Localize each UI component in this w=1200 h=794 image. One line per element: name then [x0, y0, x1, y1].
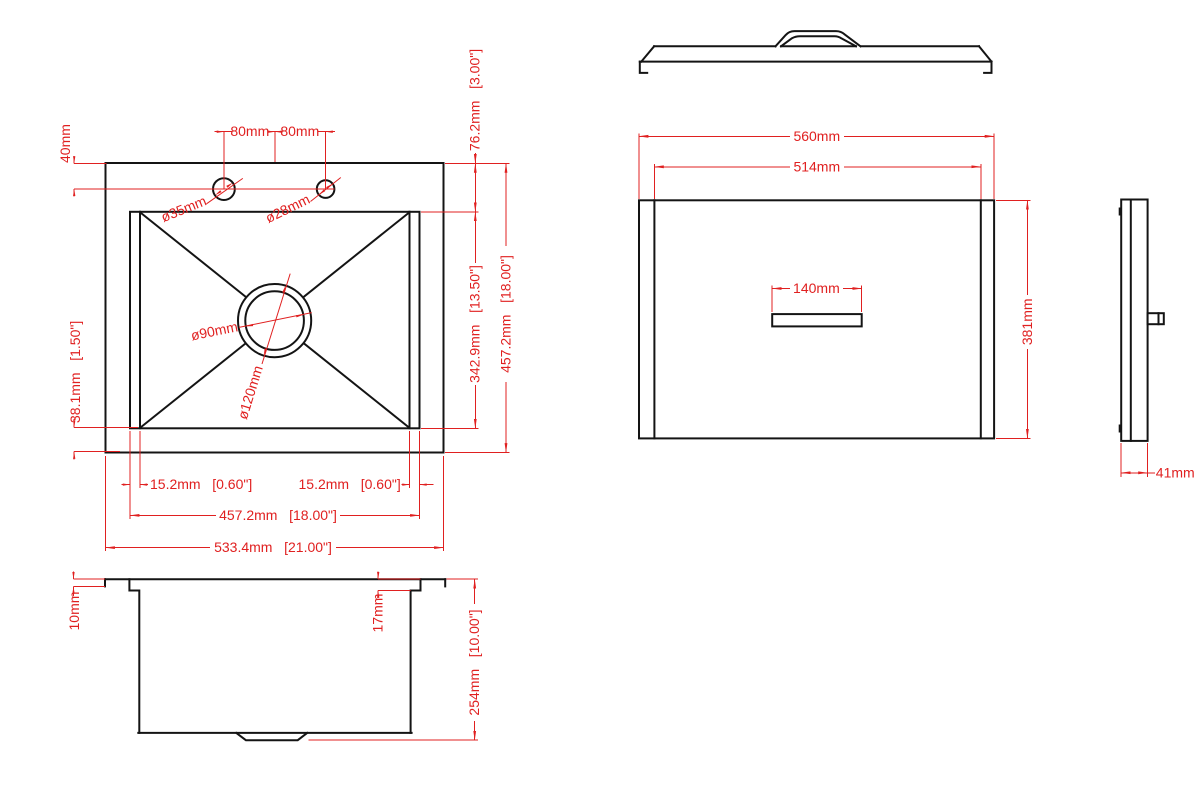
svg-text:457.2mm [18.00"]: 457.2mm [18.00"]	[219, 507, 337, 523]
svg-text:38.1mm [1.50"]: 38.1mm [1.50"]	[67, 321, 83, 423]
svg-text:41mm: 41mm	[1156, 464, 1195, 480]
svg-text:15.2mm [0.60"]: 15.2mm [0.60"]	[299, 476, 401, 492]
svg-text:17mm: 17mm	[370, 594, 386, 633]
svg-text:533.4mm [21.00"]: 533.4mm [21.00"]	[214, 539, 332, 555]
svg-text:80mm: 80mm	[280, 123, 319, 139]
svg-text:254mm [10.00"]: 254mm [10.00"]	[466, 609, 482, 715]
svg-text:15.2mm [0.60"]: 15.2mm [0.60"]	[150, 476, 252, 492]
svg-text:514mm: 514mm	[793, 158, 840, 174]
svg-text:76.2mm [3.00"]: 76.2mm [3.00"]	[467, 49, 483, 151]
svg-text:457.2mm [18.00"]: 457.2mm [18.00"]	[497, 255, 513, 373]
svg-text:40mm: 40mm	[57, 124, 73, 163]
svg-text:381mm: 381mm	[1019, 298, 1035, 345]
svg-text:80mm: 80mm	[230, 123, 269, 139]
svg-text:342.9mm [13.50"]: 342.9mm [13.50"]	[467, 265, 483, 383]
svg-text:140mm: 140mm	[793, 280, 840, 296]
svg-text:560mm: 560mm	[793, 128, 840, 144]
svg-text:10mm: 10mm	[66, 592, 82, 631]
